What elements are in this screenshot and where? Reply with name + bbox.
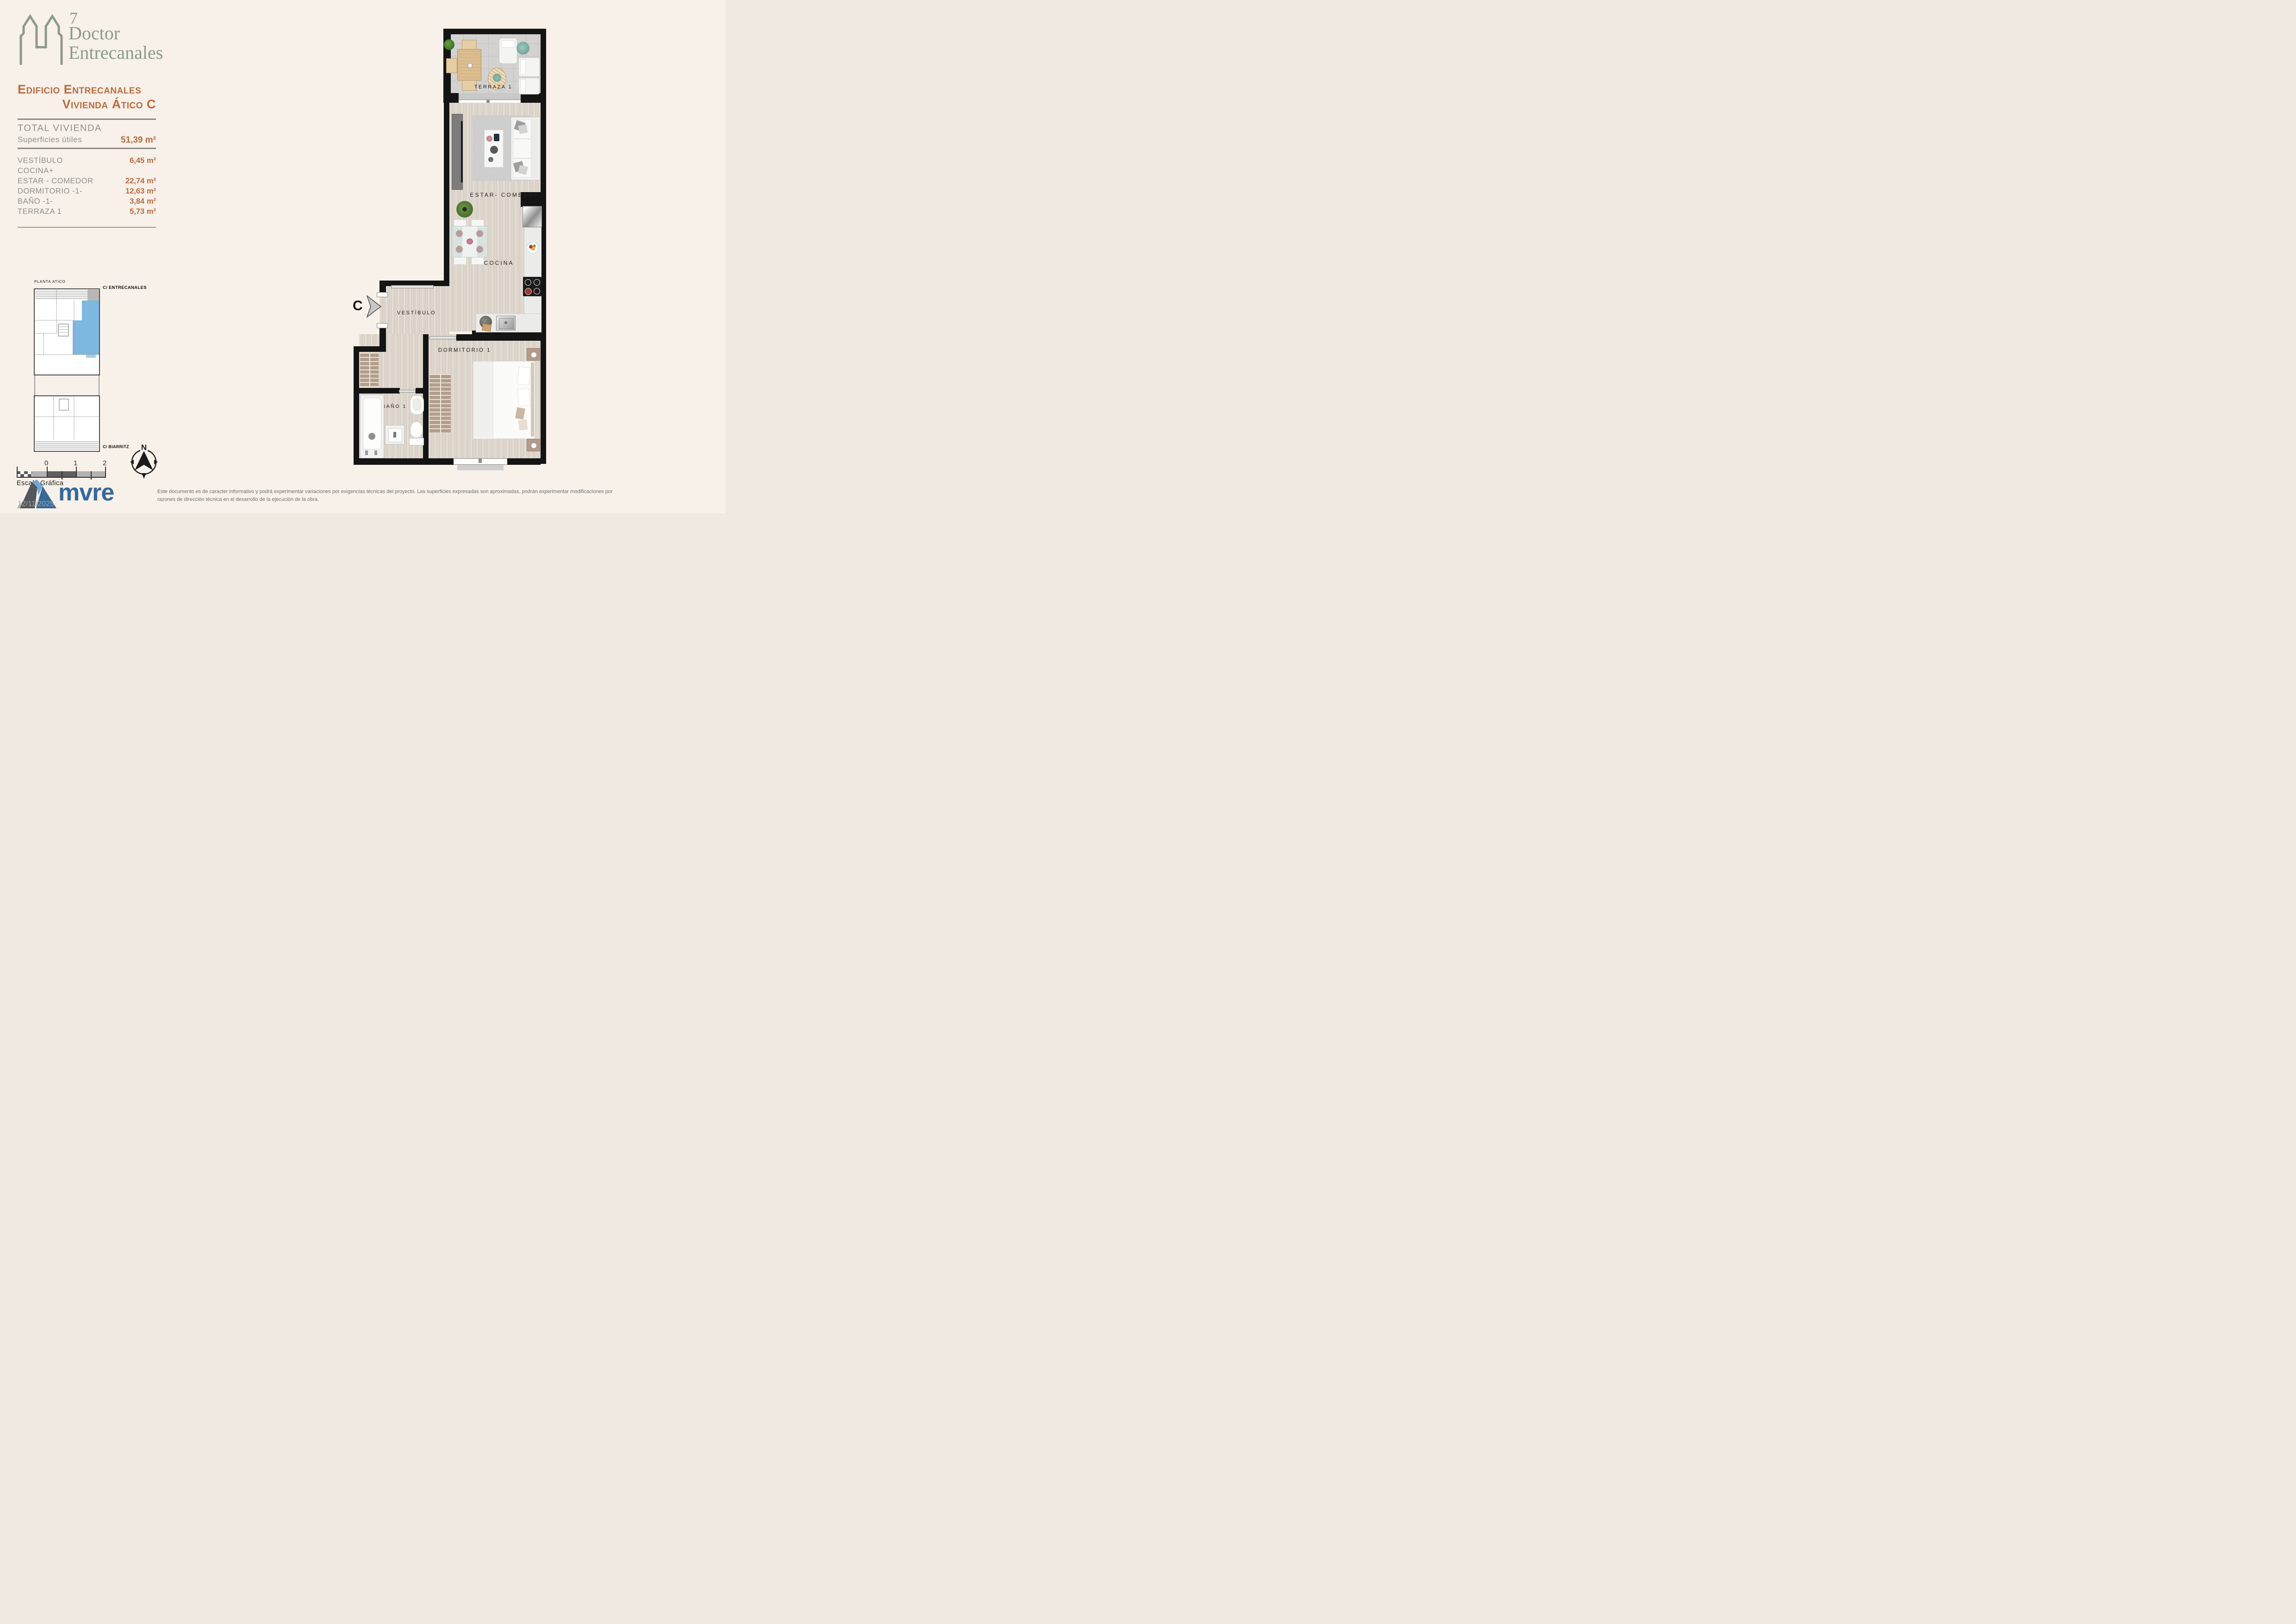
wall [507, 458, 541, 465]
entry-arrow-icon [367, 295, 382, 318]
plant-icon [516, 42, 529, 55]
floor-plan: TERRAZA 1 ESTAR- COMEDOR [0, 0, 726, 513]
plant-icon [456, 201, 473, 218]
room-label-estar: ESTAR- COMEDOR [470, 192, 540, 198]
bathtub [360, 394, 384, 458]
tray-decor [488, 157, 493, 162]
sliding-door-vestibulo [391, 285, 434, 288]
bath-sink [385, 425, 404, 444]
coffee-table [484, 130, 504, 168]
nightstand [527, 439, 540, 451]
wall [354, 458, 454, 465]
wall [359, 388, 400, 394]
bed-pillow [517, 388, 530, 406]
place-setting [456, 230, 463, 237]
wall [444, 103, 449, 286]
fruit-bowl [527, 242, 539, 254]
pillow [518, 165, 528, 175]
terrace-lounger [499, 38, 517, 64]
plant-icon [444, 39, 454, 50]
tablet-decor [494, 134, 499, 141]
wall [443, 93, 459, 103]
wardrobe [429, 374, 451, 432]
flower-decor [486, 136, 492, 142]
room-label-terraza: TERRAZA 1 [474, 84, 512, 90]
plan-sheet: 7 Doctor Entrecanales Edificio Entrecana… [0, 0, 726, 513]
place-setting [456, 246, 463, 253]
room-label-dormitorio: DORMITORIO 1 [438, 348, 491, 353]
fridge [523, 206, 542, 227]
wall [456, 334, 541, 341]
terrace-table [457, 49, 481, 81]
room-label-bano: BAÑO 1 [382, 404, 407, 409]
kitchen-sink [496, 316, 516, 331]
place-setting [476, 246, 483, 253]
bidet [410, 395, 424, 415]
terraza-threshold [459, 94, 521, 100]
sink-tap [393, 432, 396, 437]
nightstand [527, 348, 540, 361]
sofa [511, 117, 540, 180]
tv-screen [461, 121, 463, 182]
bed-pillow [517, 367, 531, 386]
cooktop [523, 277, 541, 296]
bath-tap [365, 450, 368, 455]
wardrobe [360, 353, 379, 387]
room-label-cocina: COCINA [484, 260, 514, 266]
wall [443, 29, 546, 34]
room-label-vestibulo: VESTÍBULO [397, 310, 436, 316]
wall [354, 346, 386, 352]
sliding-door-dormitorio [429, 336, 456, 339]
terrace-lounger [518, 78, 540, 94]
bed-cushion [518, 419, 528, 431]
wall [521, 93, 541, 103]
bed-cushion [515, 407, 525, 420]
bath-drain [368, 433, 375, 440]
entry-unit-label: C [353, 298, 363, 314]
sliding-door-bano [399, 390, 416, 393]
entry-door-jamb [377, 323, 388, 328]
bed [473, 361, 535, 439]
wall [354, 352, 359, 464]
pillow [518, 125, 528, 134]
terrace-lounger [518, 57, 540, 77]
bath-tap [374, 450, 377, 455]
bedroom-window-sill [457, 465, 504, 470]
place-setting [476, 230, 483, 237]
cutting-board [482, 324, 492, 331]
dining-table [452, 226, 488, 257]
bedroom-window [454, 458, 507, 465]
toilet [409, 421, 423, 444]
tray-decor [490, 146, 498, 154]
bed-headboard [531, 362, 534, 437]
flower-decor [467, 238, 473, 244]
terrace-chair [446, 58, 457, 73]
